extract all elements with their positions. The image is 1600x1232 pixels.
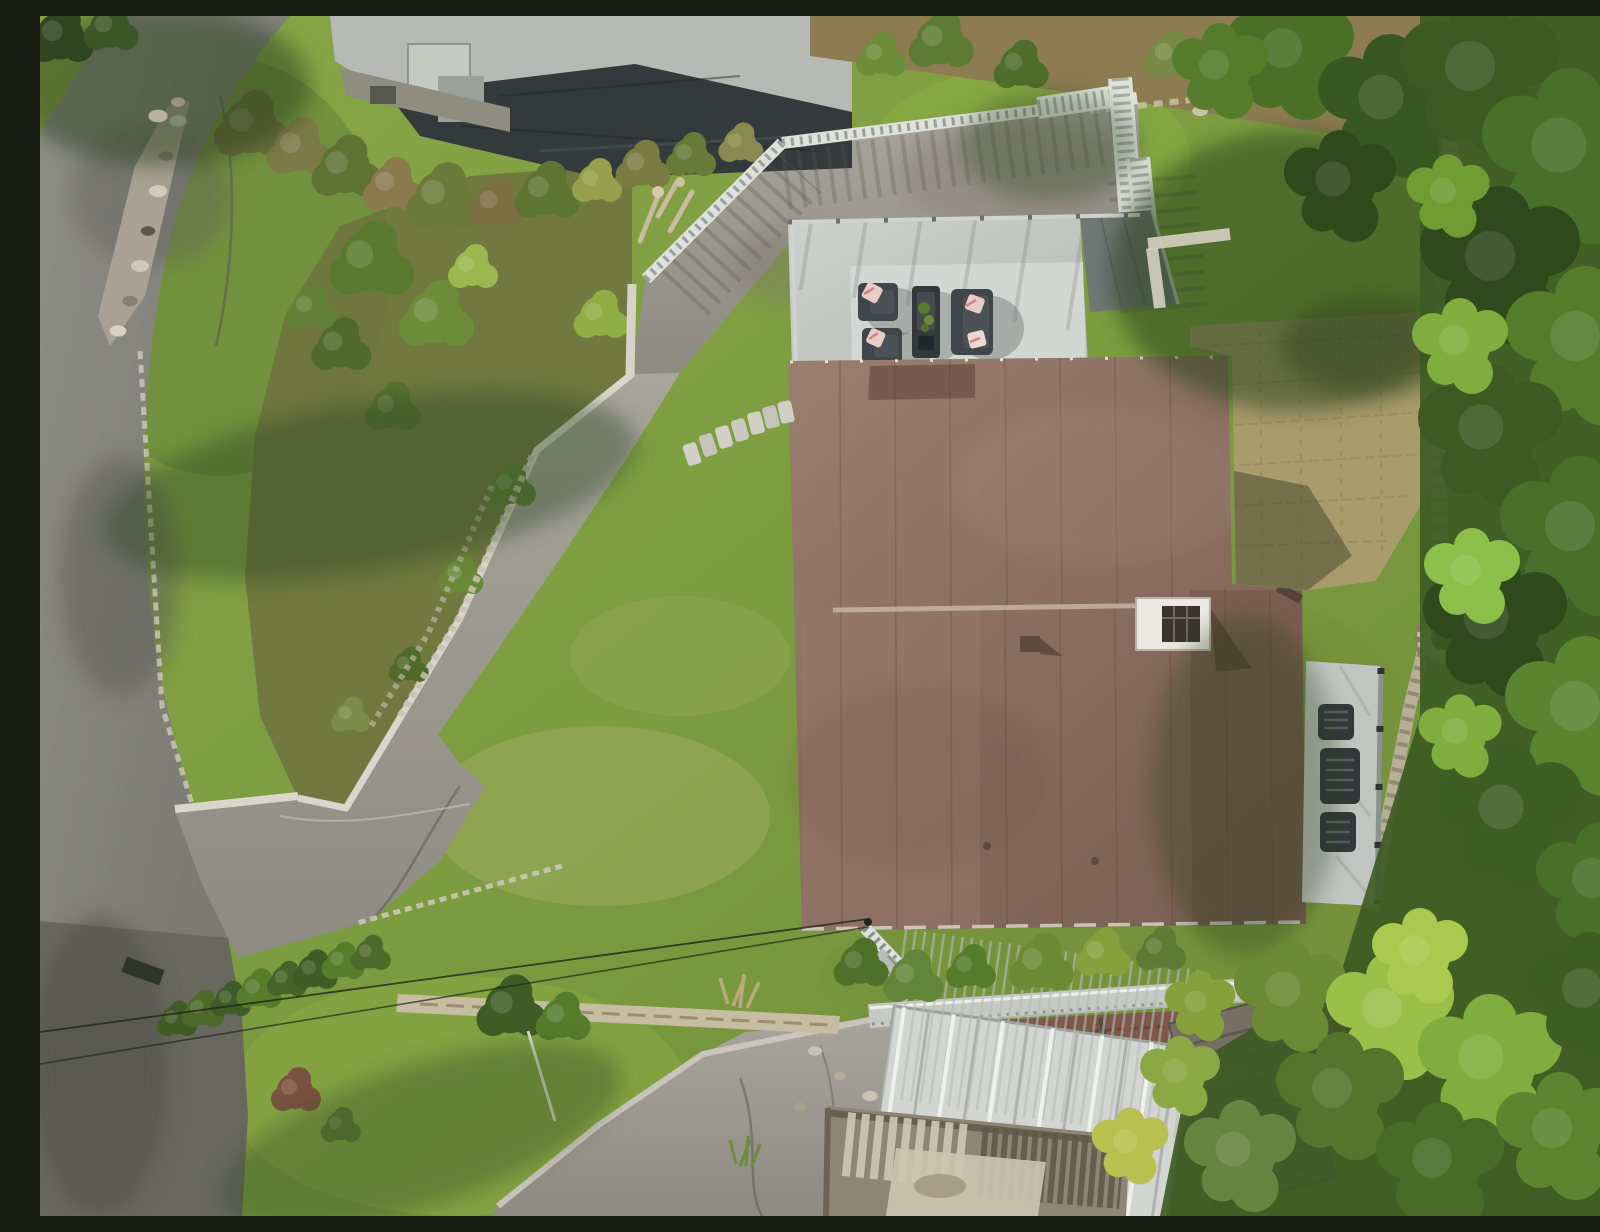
aerial-photo: Aerial drone view of hillside property xyxy=(40,16,1600,1216)
tree-shadow xyxy=(1150,616,1340,956)
tree-shadow xyxy=(960,91,1140,201)
stone xyxy=(862,1091,878,1101)
stone xyxy=(110,325,127,336)
pollard-knob xyxy=(675,177,685,187)
utility-pole-top xyxy=(864,918,872,926)
roof-vent xyxy=(1020,636,1040,652)
potted-plant xyxy=(918,302,930,314)
chimney-flue xyxy=(1162,606,1200,642)
potted-plant xyxy=(924,315,934,325)
stone xyxy=(148,110,167,123)
stone xyxy=(808,1046,822,1056)
concrete-footing xyxy=(1152,248,1160,308)
landing-stain xyxy=(914,1174,966,1198)
stone xyxy=(171,97,185,107)
armchair xyxy=(858,281,898,321)
stone xyxy=(794,1102,806,1110)
potted-plant xyxy=(921,324,929,332)
stone xyxy=(141,226,155,236)
stone xyxy=(122,296,138,306)
dry-grass-patch xyxy=(570,596,790,716)
roof-dark-patch xyxy=(868,364,975,400)
dry-grass-patch xyxy=(430,726,770,906)
roof-drain xyxy=(1091,857,1099,865)
roof-sun-sheen xyxy=(950,406,1250,566)
roof-shade xyxy=(790,686,1050,866)
stone xyxy=(131,260,149,272)
fire-table xyxy=(912,286,940,358)
loveseat xyxy=(951,289,993,355)
aerial-photo-canvas: Aerial drone view of hillside property xyxy=(40,16,1600,1216)
stone xyxy=(834,1072,846,1080)
roof-drain xyxy=(983,842,991,850)
pollard-knob xyxy=(652,186,664,198)
armchair xyxy=(862,327,902,364)
stone xyxy=(149,185,167,197)
neighbor-window xyxy=(370,86,396,104)
white-wall xyxy=(630,284,632,376)
